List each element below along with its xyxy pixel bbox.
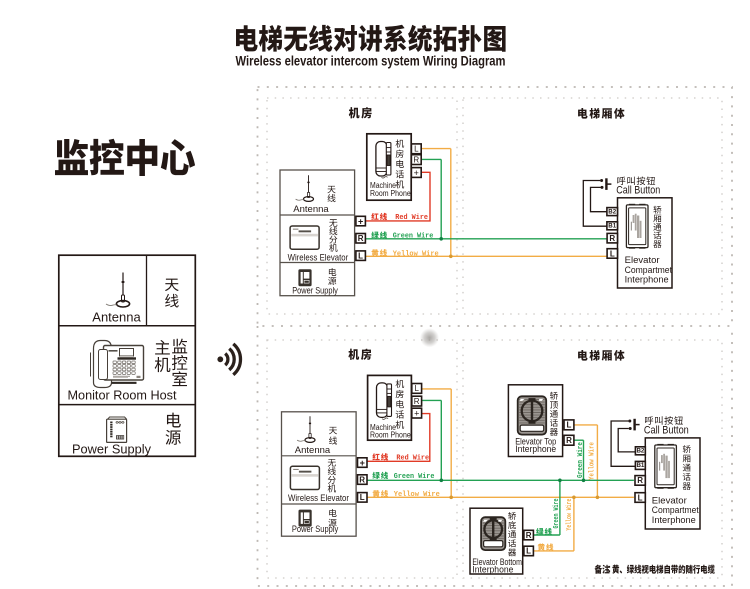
svg-text:R: R — [358, 234, 364, 243]
svg-text:Power Supply: Power Supply — [72, 442, 151, 457]
svg-text:Antenna: Antenna — [295, 445, 331, 456]
svg-text:Wireless Elevator: Wireless Elevator — [288, 253, 349, 264]
svg-text:+: + — [358, 216, 363, 226]
svg-text:Red Wire: Red Wire — [396, 454, 429, 462]
svg-text:Green Wire: Green Wire — [393, 233, 434, 241]
svg-text:R: R — [566, 436, 572, 445]
svg-text:Antenna: Antenna — [92, 309, 141, 324]
svg-text:Yellow Wire: Yellow Wire — [589, 442, 597, 480]
svg-text:L: L — [358, 252, 363, 261]
svg-text:Room Phone: Room Phone — [370, 431, 411, 440]
svg-text:Green Wire: Green Wire — [577, 442, 585, 478]
svg-text:B2: B2 — [636, 448, 644, 455]
svg-text:L: L — [526, 547, 531, 556]
svg-text:Yellow Wire: Yellow Wire — [393, 250, 439, 258]
svg-text:Interphone: Interphone — [625, 274, 669, 284]
svg-text:L: L — [414, 145, 419, 154]
svg-text:L: L — [638, 493, 643, 502]
svg-text:L: L — [610, 249, 615, 258]
svg-text:L: L — [360, 493, 365, 502]
svg-text:B2: B2 — [608, 208, 616, 215]
svg-text:R: R — [414, 397, 420, 406]
svg-text:Wireless Elevator: Wireless Elevator — [288, 493, 349, 504]
svg-text:Monitor Room Host: Monitor Room Host — [68, 388, 177, 403]
svg-text:Call Button: Call Button — [644, 425, 689, 437]
svg-text:Elevator: Elevator — [652, 495, 687, 505]
svg-text:Interphone: Interphone — [472, 565, 513, 575]
svg-text:Interphone: Interphone — [515, 444, 556, 454]
svg-text:Antenna: Antenna — [293, 204, 329, 215]
svg-text:B1: B1 — [636, 462, 644, 469]
svg-text:B1: B1 — [608, 223, 616, 230]
svg-text:Green Wire: Green Wire — [553, 499, 561, 529]
svg-text:Yellow Wire: Yellow Wire — [394, 491, 440, 499]
svg-text:Red Wire: Red Wire — [395, 214, 428, 222]
svg-text:R: R — [526, 531, 532, 540]
svg-text:Elevator: Elevator — [625, 255, 660, 265]
svg-text:Call Button: Call Button — [616, 185, 660, 197]
svg-text:L: L — [567, 421, 572, 430]
svg-text:Room Phone: Room Phone — [370, 189, 411, 198]
svg-text:+: + — [414, 408, 419, 418]
svg-text:Yellow Wire: Yellow Wire — [566, 499, 574, 531]
svg-text:R: R — [637, 476, 643, 485]
svg-text:R: R — [413, 155, 419, 164]
svg-text:Green Wire: Green Wire — [394, 473, 435, 481]
svg-text:L: L — [414, 384, 419, 393]
svg-text:Wireless elevator intercom sys: Wireless elevator intercom system Wiring… — [236, 54, 506, 70]
svg-text:Compartmet: Compartmet — [652, 505, 700, 515]
svg-text:R: R — [359, 475, 365, 484]
svg-text:Power Supply: Power Supply — [292, 286, 338, 297]
svg-text:Interphone: Interphone — [652, 515, 696, 525]
svg-text:Power Supply: Power Supply — [292, 524, 339, 535]
svg-text:+: + — [360, 458, 365, 468]
svg-text:R: R — [609, 234, 615, 243]
svg-text:+: + — [414, 168, 419, 178]
